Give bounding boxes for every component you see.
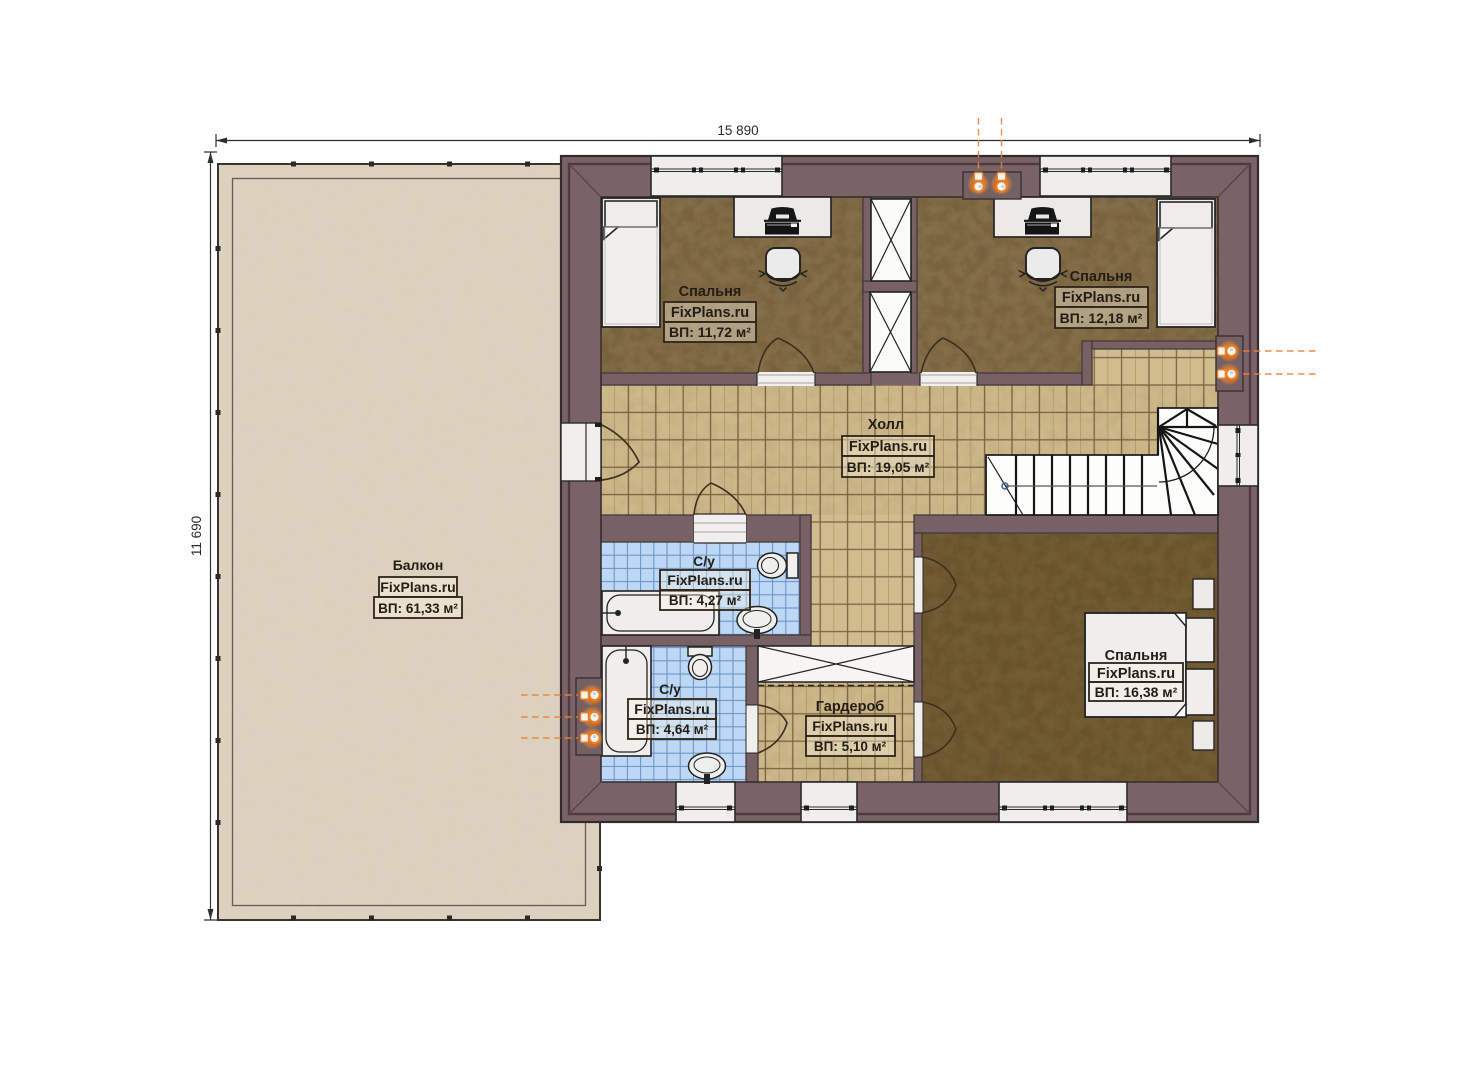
svg-text:11 690: 11 690 <box>189 516 204 556</box>
svg-text:FixPlans.ru: FixPlans.ru <box>812 718 887 734</box>
svg-text:ВП: 19,05 м²: ВП: 19,05 м² <box>847 459 930 475</box>
svg-text:Спальня: Спальня <box>679 284 742 300</box>
svg-text:FixPlans.ru: FixPlans.ru <box>849 439 927 455</box>
svg-text:FixPlans.ru: FixPlans.ru <box>667 572 742 588</box>
svg-text:Гардероб: Гардероб <box>816 699 885 715</box>
svg-text:Холл: Холл <box>868 417 904 433</box>
svg-text:Спальня: Спальня <box>1070 269 1133 285</box>
svg-text:FixPlans.ru: FixPlans.ru <box>671 305 749 321</box>
svg-text:FixPlans.ru: FixPlans.ru <box>380 579 455 595</box>
svg-text:ВП: 12,18 м²: ВП: 12,18 м² <box>1060 310 1143 326</box>
svg-text:ВП: 4,64 м²: ВП: 4,64 м² <box>636 722 709 737</box>
svg-text:ВП: 16,38 м²: ВП: 16,38 м² <box>1095 684 1178 700</box>
svg-text:Спальня: Спальня <box>1105 648 1168 664</box>
svg-text:FixPlans.ru: FixPlans.ru <box>1062 290 1140 306</box>
svg-text:ВП: 11,72 м²: ВП: 11,72 м² <box>669 324 751 340</box>
svg-text:С/у: С/у <box>693 553 715 569</box>
svg-text:С/у: С/у <box>659 681 681 697</box>
svg-text:Балкон: Балкон <box>393 557 444 573</box>
svg-text:15 890: 15 890 <box>717 123 758 138</box>
svg-text:ВП: 4,27 м²: ВП: 4,27 м² <box>669 593 742 608</box>
svg-text:ВП: 5,10 м²: ВП: 5,10 м² <box>814 739 887 754</box>
svg-text:FixPlans.ru: FixPlans.ru <box>634 701 709 717</box>
svg-text:FixPlans.ru: FixPlans.ru <box>1097 666 1175 682</box>
svg-text:ВП: 61,33 м²: ВП: 61,33 м² <box>378 601 458 616</box>
